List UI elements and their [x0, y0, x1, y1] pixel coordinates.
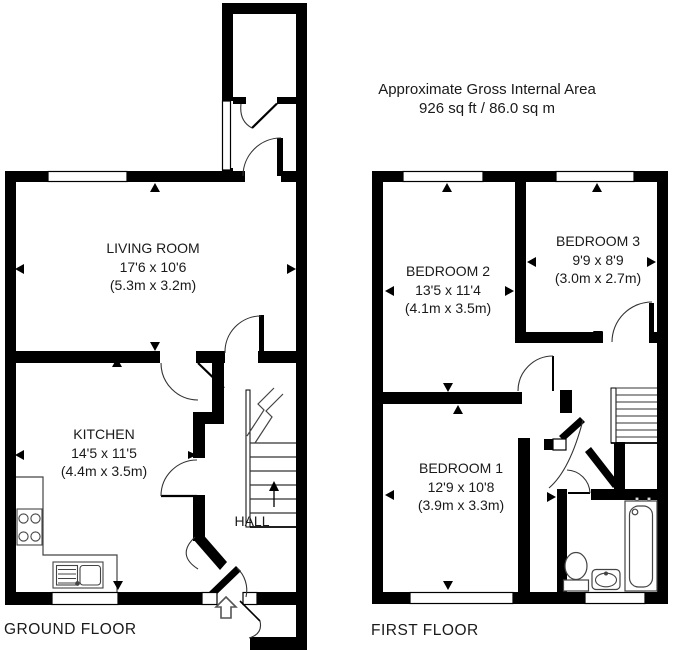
bathtub-icon	[625, 498, 657, 592]
entrance-arrow-icon	[216, 597, 236, 618]
hob-icon	[17, 509, 42, 545]
bedroom-1-label: BEDROOM 1 12'9 x 10'8 (3.9m x 3.3m)	[418, 459, 504, 515]
room-dims-metric: (3.9m x 3.3m)	[418, 496, 504, 515]
first-floor-staircase	[611, 388, 657, 443]
room-dims-metric: (4.1m x 3.5m)	[405, 299, 491, 318]
room-dims-imperial: 12'9 x 10'8	[418, 478, 504, 497]
bedroom-3-label: BEDROOM 3 9'9 x 8'9 (3.0m x 2.7m)	[555, 232, 641, 288]
room-dims-imperial: 9'9 x 8'9	[555, 251, 641, 270]
living-room-label: LIVING ROOM 17'6 x 10'6 (5.3m x 3.2m)	[106, 239, 199, 295]
room-dims-metric: (4.4m x 3.5m)	[61, 462, 147, 481]
room-dims-imperial: 17'6 x 10'6	[106, 258, 199, 277]
room-dims-metric: (5.3m x 3.2m)	[106, 276, 199, 295]
first-floor-doors	[518, 302, 652, 493]
room-dims-imperial: 13'5 x 11'4	[405, 281, 491, 300]
room-dims-metric: (3.0m x 2.7m)	[555, 269, 641, 288]
room-name: LIVING ROOM	[106, 239, 199, 258]
bedroom-2-label: BEDROOM 2 13'5 x 11'4 (4.1m x 3.5m)	[405, 262, 491, 318]
room-name: BEDROOM 3	[555, 232, 641, 251]
first-floor-label: FIRST FLOOR	[371, 622, 479, 640]
sink-icon	[53, 562, 103, 588]
kitchen-label: KITCHEN 14'5 x 11'5 (4.4m x 3.5m)	[61, 425, 147, 481]
area-summary-line1: Approximate Gross Internal Area	[337, 80, 637, 99]
room-name: BEDROOM 1	[418, 459, 504, 478]
hall-label: HALL	[234, 513, 269, 529]
room-name: KITCHEN	[61, 425, 147, 444]
ground-floor-plan	[5, 3, 307, 650]
basin-icon	[592, 570, 620, 590]
area-summary-line2: 926 sq ft / 86.0 sq m	[337, 99, 637, 118]
toilet-icon	[564, 553, 589, 592]
room-dims-imperial: 14'5 x 11'5	[61, 444, 147, 463]
floorplan-canvas: Approximate Gross Internal Area 926 sq f…	[0, 0, 677, 650]
area-summary: Approximate Gross Internal Area 926 sq f…	[337, 80, 637, 118]
ground-floor-staircase	[246, 388, 296, 527]
ground-floor-label: GROUND FLOOR	[4, 621, 137, 639]
room-name: BEDROOM 2	[405, 262, 491, 281]
